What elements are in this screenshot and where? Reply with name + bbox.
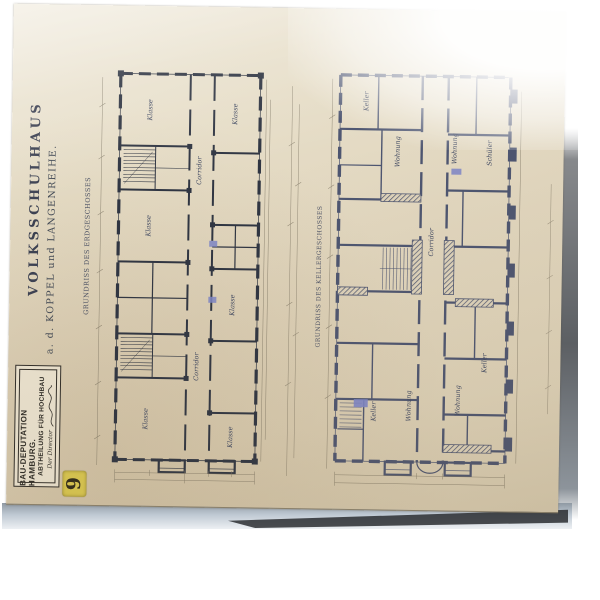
signature-scribble xyxy=(46,384,57,428)
room-label: Keller xyxy=(363,71,374,131)
margin-dimension-lines-center xyxy=(283,86,305,478)
sheet-number: 9 xyxy=(63,477,85,491)
caption-kellergeschoss: GRUNDRISS DES KELLERGESCHOSSES xyxy=(316,251,326,347)
photographed-drawing: VOLKSSCHULHAUS a. d. KOPPEL und LANGENRE… xyxy=(0,0,600,600)
sheet-title-line2: a. d. KOPPEL und LANGENREIHE. xyxy=(45,124,61,374)
sheet-number-label: 9 xyxy=(62,471,86,497)
room-label: Klasse xyxy=(142,389,153,449)
drawing-sheet: VOLKSSCHULHAUS a. d. KOPPEL und LANGENRE… xyxy=(6,4,566,514)
margin-dimension-lines-right xyxy=(542,184,558,414)
bau-deputation-stamp: BAU-DEPUTATION HAMBURG. ABTHEILUNG FÜR H… xyxy=(13,365,61,488)
room-label: Keller xyxy=(370,381,381,441)
room-label: Klasse xyxy=(227,407,238,467)
room-label: Wohnung xyxy=(454,371,465,431)
room-label: Klasse xyxy=(229,275,240,335)
room-label: Klasse xyxy=(232,84,243,144)
room-label: Wohnung xyxy=(451,119,462,179)
room-label: Corridor xyxy=(428,212,439,272)
floorplan-erdgeschoss xyxy=(88,67,273,490)
room-label: Wohnung xyxy=(405,376,416,436)
room-label: Wohnung xyxy=(394,122,405,182)
facade-buttresses xyxy=(505,90,518,452)
stamp-line1: BAU-DEPUTATION HAMBURG. xyxy=(18,366,38,486)
room-label: Klasse xyxy=(147,80,158,140)
room-label: Klasse xyxy=(145,196,156,256)
room-label: Schüler xyxy=(486,123,497,183)
stamp-line3: Der Director xyxy=(47,430,55,469)
room-label: Corridor xyxy=(193,337,204,397)
sheet-title-line1: VOLKSSCHULHAUS xyxy=(27,126,46,296)
room-label: Corridor xyxy=(196,141,207,201)
room-label: Keller xyxy=(481,333,492,393)
